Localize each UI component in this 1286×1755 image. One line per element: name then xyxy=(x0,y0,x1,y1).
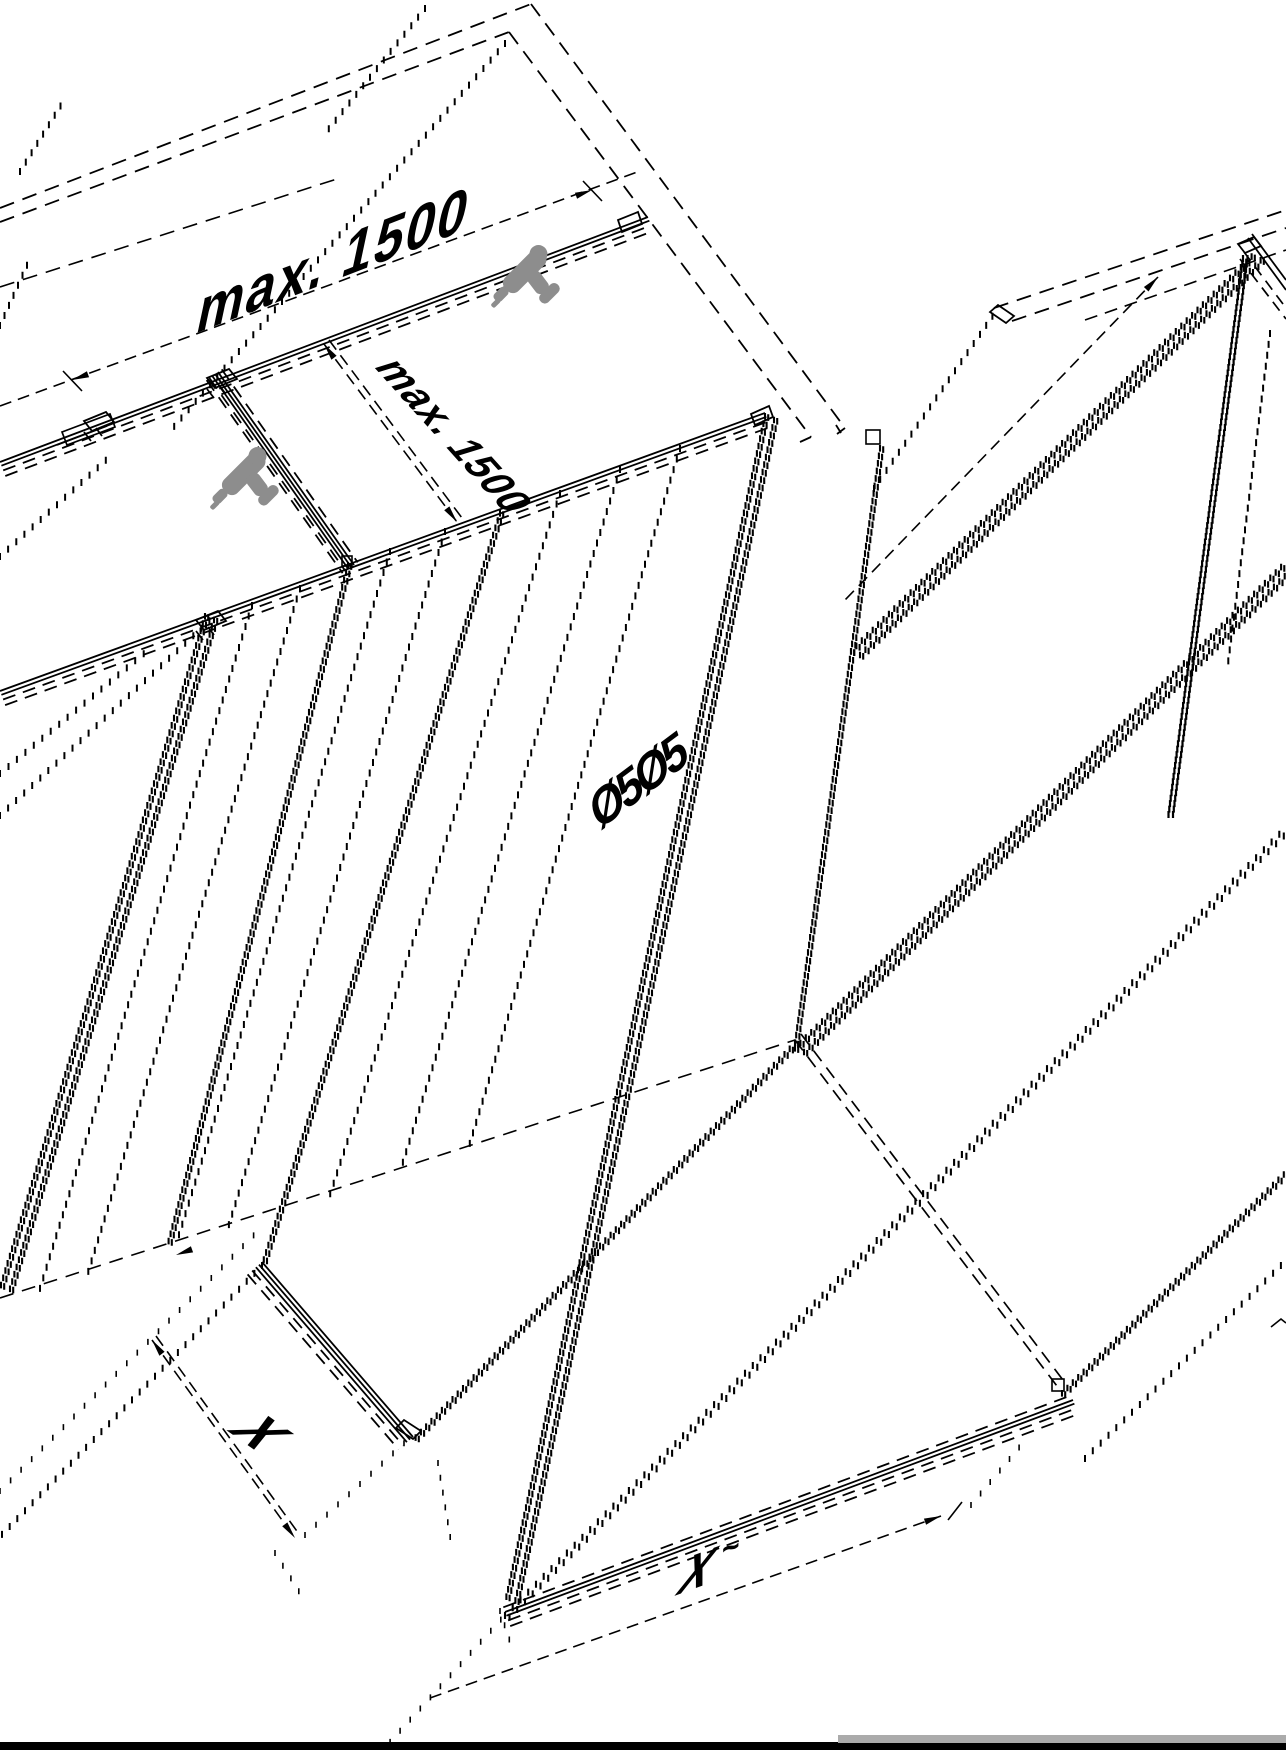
svg-text:~: ~ xyxy=(722,1526,740,1571)
